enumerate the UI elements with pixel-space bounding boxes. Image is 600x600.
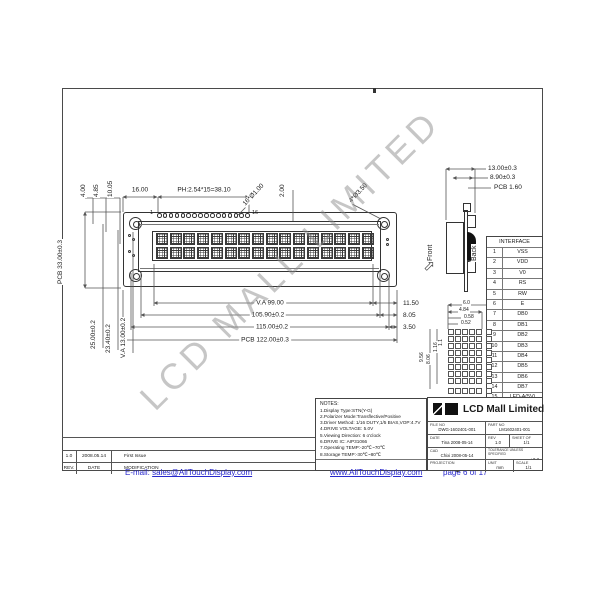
pin-name: DB6	[503, 373, 542, 382]
interface-table-title: INTERFACE	[487, 237, 542, 247]
dot-dim-b: 0.52	[460, 320, 472, 327]
tolerance-label: TOLERANCE UNLESS SPECIFIED	[488, 449, 541, 457]
date-value: Tina 2008-05-14	[430, 440, 484, 445]
revision-empty-row	[62, 438, 315, 450]
dot-dim-char-width: 4.84	[458, 307, 470, 314]
dim-pcb-width: PCB 122.00±0.3	[239, 337, 291, 344]
pin-name: E	[503, 300, 542, 309]
unit-value: mm	[488, 465, 512, 470]
interface-row: 5RW	[487, 289, 542, 299]
interface-row: 7DB0	[487, 309, 542, 319]
revision-date: 2008.05.14	[77, 451, 112, 462]
interface-row: 6E	[487, 299, 542, 309]
revision-data-row: 1.0 2008.05.14 First Issue	[62, 450, 315, 462]
interface-row: 2VDD	[487, 257, 542, 267]
dim-va-height: V.A 13.00±0.2	[120, 317, 127, 359]
projection-label: PROJECTION	[430, 461, 484, 465]
notes-box: NOTES: 1.Display Type:STN(Y-G) 2.Polariz…	[315, 398, 427, 471]
title-block-row: CADChixi 2008-05-14 TOLERANCE UNLESS SPE…	[428, 447, 542, 459]
title-block-row: PROJECTION 3rd ANGLE UNITmm SCALE1/1	[428, 459, 542, 472]
sheet-value: 1/1	[512, 440, 541, 445]
notes-bottom-line	[316, 459, 426, 460]
dot-dim-pitch-y: 9.56	[419, 351, 425, 363]
dot-grid-column	[486, 329, 492, 384]
revision-rev: 1.0	[62, 451, 77, 462]
pin-number: 5	[487, 290, 503, 299]
pin-number: 6	[487, 300, 503, 309]
dim-right2: 8.05	[402, 312, 417, 319]
title-block-row: DATETina 2008-05-14 REV1.0 SHEET OF1/1	[428, 434, 542, 447]
dim-pcb-height: PCB 33.00±0.3	[57, 239, 64, 285]
footer-email: E-mail: sales@AllTouchDisplay.com	[125, 468, 252, 477]
pin-name: DB3	[503, 342, 542, 351]
pin-number: 4	[487, 279, 503, 288]
pin-name: DB1	[503, 321, 542, 330]
file-no-value: DWG-1602401-001	[430, 427, 484, 432]
dot-grid-row	[448, 388, 482, 394]
dot-dim-d: 1.1	[438, 338, 444, 347]
email-label: E-mail:	[125, 468, 150, 477]
company-row: LCD Mall Limited	[428, 398, 542, 421]
dim-hole-spacing: 25.00±0.2	[90, 319, 97, 350]
pin-name: VDD	[503, 258, 542, 267]
dim-right3: 3.50	[402, 324, 417, 331]
pin-name: RS	[503, 279, 542, 288]
dim-pin-pitch: PH:2.54*15=38.10	[175, 187, 232, 194]
interface-row: 9DB2	[487, 330, 542, 340]
dim-side-pcb: PCB 1.60	[493, 184, 523, 191]
pin-name: DB7	[503, 383, 542, 392]
cad-value: Chixi 2008-05-14	[430, 453, 484, 458]
title-block-row: FILE NODWG-1602401-001 PART NOLM1602401-…	[428, 421, 542, 434]
interface-row: 12DB5	[487, 361, 542, 371]
dim-offset3: 10.05	[107, 180, 114, 198]
projection-symbol-icon	[455, 471, 466, 472]
website-link[interactable]: www.AllTouchDisplay.com	[330, 468, 422, 477]
side-front-label: Front	[427, 244, 434, 262]
dot-dim-char-height: 8.06	[426, 353, 432, 365]
pin-number: 7	[487, 310, 503, 319]
scale-value: 1/1	[516, 465, 541, 470]
part-no-value: LM1602401-001	[488, 427, 541, 432]
pin-number: 1	[487, 248, 503, 257]
company-logo-icon	[433, 402, 459, 417]
dot-grid-corner-cell	[486, 388, 492, 394]
dim-side-total: 13.00±0.3	[487, 165, 518, 172]
interface-row: 10DB3	[487, 341, 542, 351]
dot-dim-pitch-x: 6.0	[462, 300, 471, 307]
interface-row: 14DB7	[487, 382, 542, 392]
dim-offset2: 4.85	[93, 183, 100, 198]
title-block: LCD Mall Limited FILE NODWG-1602401-001 …	[427, 397, 543, 471]
pin-name: DB0	[503, 310, 542, 319]
interface-row: 13DB6	[487, 372, 542, 382]
pin-name: DB5	[503, 362, 542, 371]
pin-name: DB2	[503, 331, 542, 340]
dot-grid-main	[448, 329, 482, 384]
interface-row: 3V0	[487, 268, 542, 278]
pin-name: DB4	[503, 352, 542, 361]
email-link[interactable]: sales@AllTouchDisplay.com	[152, 468, 252, 477]
side-back-label: Back	[471, 244, 478, 262]
pin-name: VSS	[503, 248, 542, 257]
note-line: 8.Storage TEMP:-30℃~80℃	[320, 452, 424, 458]
dim-va-width: V.A 99.00	[254, 300, 286, 307]
interface-row: 8DB1	[487, 320, 542, 330]
revision-modification: First Issue	[112, 451, 315, 462]
pin-name: V0	[503, 269, 542, 278]
dim-bezel-width: 105.90±0.2	[250, 312, 286, 319]
interface-table: INTERFACE 1VSS 2VDD 3V0 4RS 5RW 6E 7DB0 …	[486, 236, 543, 414]
interface-row: 11DB4	[487, 351, 542, 361]
dim-side-module: 8.90±0.3	[489, 174, 516, 181]
interface-row: 4RS	[487, 278, 542, 288]
company-name: LCD Mall Limited	[463, 404, 544, 415]
dim-gap: 2.00	[279, 183, 286, 198]
pin-number: 2	[487, 258, 503, 267]
dim-right1: 11.50	[402, 300, 420, 307]
dim-offset1: 4.00	[80, 183, 87, 198]
pin-number: 3	[487, 269, 503, 278]
dim-module-width: 115.00±0.2	[254, 324, 290, 331]
pin-name: RW	[503, 290, 542, 299]
dim-conn-start: 16.00	[130, 187, 150, 194]
rev-value: 1.0	[488, 440, 508, 445]
interface-row: 1VSS	[487, 247, 542, 257]
dim-frame-height: 23.40±0.2	[105, 323, 112, 354]
